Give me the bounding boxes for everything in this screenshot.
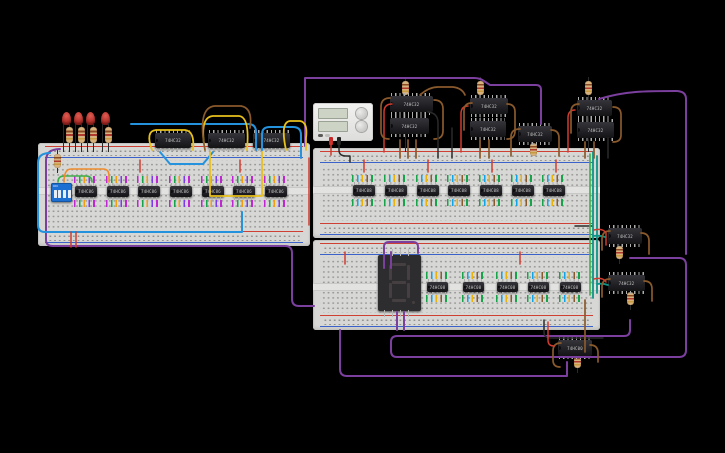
ic-label: 74HC86: [110, 189, 126, 194]
rail-red-line: [320, 151, 593, 152]
breadboard[interactable]: [313, 240, 600, 330]
jumper-wires-top: [232, 176, 256, 183]
rail-holes[interactable]: [322, 318, 591, 325]
ic-pins-top: [234, 183, 254, 186]
wire-red[interactable]: [568, 110, 575, 152]
jumper-wires-top: [542, 175, 566, 182]
ic-pins-top: [171, 183, 191, 186]
jumper-wires-top: [106, 176, 130, 183]
ic-label: 74HC00: [567, 346, 583, 351]
resistor-leg: [480, 77, 481, 81]
rail-blue-line: [320, 254, 593, 255]
jumper-wires-bottom: [527, 295, 550, 302]
segment: [389, 265, 392, 280]
resistor[interactable]: [54, 154, 61, 168]
resistor-leg: [108, 123, 109, 127]
ic-chip[interactable]: 74HC08: [560, 282, 581, 292]
ic-chip[interactable]: 74HC08: [528, 282, 549, 292]
ic-label: 74HC32: [264, 138, 280, 143]
circuit-canvas[interactable]: ON74HC3274HC3274HC3274HC8674HC8674HC8674…: [0, 0, 725, 453]
jumper-wires-top: [511, 175, 535, 182]
ic-label: 74HC86: [141, 189, 157, 194]
ic-pins-bottom: [254, 148, 289, 151]
rail-blue-line: [45, 242, 303, 243]
rail-blue-line: [320, 162, 593, 163]
rail-holes[interactable]: [322, 246, 591, 253]
jumper-wires-bottom: [106, 200, 130, 207]
ic-pins-bottom: [609, 244, 641, 247]
ic-chip[interactable]: 74HC32: [208, 133, 245, 148]
jumper-wires-bottom: [201, 200, 225, 207]
jumper-wires-top: [479, 175, 503, 182]
dip-switch-toggle[interactable]: [58, 190, 61, 198]
dip-switch[interactable]: ON: [51, 183, 72, 202]
psu-power-button[interactable]: [318, 134, 323, 137]
jumper-wires-bottom: [137, 200, 161, 207]
ic-chip[interactable]: 74HC32: [577, 122, 614, 138]
ic-pins-top: [391, 115, 428, 118]
rail-holes[interactable]: [322, 226, 591, 233]
resistor-leg: [69, 123, 70, 127]
segment: [407, 265, 410, 280]
ic-label: 74HC32: [480, 127, 496, 132]
ic-label: 74HC86: [268, 189, 284, 194]
ic-pins-top: [354, 182, 374, 185]
ic-chip[interactable]: 74HC86: [138, 186, 160, 197]
ic-chip[interactable]: 74HC86: [75, 186, 97, 197]
ic-label: 74HC08: [356, 188, 372, 193]
ic-label: 74HC32: [588, 128, 604, 133]
ic-pins-top: [544, 182, 564, 185]
ic-label: 74HC08: [546, 188, 562, 193]
jumper-wires-top: [201, 176, 225, 183]
rail-red-line: [45, 231, 303, 232]
psu-voltage-knob[interactable]: [356, 108, 367, 119]
ic-pins-top: [76, 183, 96, 186]
dip-switch-toggle[interactable]: [68, 190, 71, 198]
ic-chip[interactable]: 74HC86: [170, 186, 192, 197]
ic-label: 74HC08: [483, 188, 499, 193]
ic-chip[interactable]: 74HC08: [512, 185, 534, 196]
jumper-wires-top: [137, 176, 161, 183]
resistor-leg: [577, 368, 578, 373]
ic-chip[interactable]: 74HC32: [390, 96, 433, 112]
ic-pins-top: [254, 130, 289, 133]
dip-switch-toggle[interactable]: [63, 190, 66, 198]
ic-label: 74HC32: [219, 138, 235, 143]
jumper-wires-bottom: [559, 295, 582, 302]
ic-pins-bottom: [519, 142, 551, 145]
ic-label: 74HC32: [619, 281, 635, 286]
jumper-wires-top: [416, 175, 440, 182]
ic-chip[interactable]: 74HC32: [470, 98, 508, 114]
rail-red-line: [320, 243, 593, 244]
power-rail-bottom[interactable]: [45, 231, 303, 243]
ic-pins-top: [464, 279, 483, 282]
ic-label: 74HC86: [236, 189, 252, 194]
ic-pins-top: [391, 93, 432, 96]
ic-pins-bottom: [209, 148, 244, 151]
ic-label: 74HC08: [451, 188, 467, 193]
ic-chip[interactable]: 74HC08: [427, 282, 448, 292]
jumper-wires-bottom: [232, 200, 256, 207]
jumper-wires-top: [559, 272, 582, 279]
led-cathode-leg: [75, 124, 76, 152]
display-pin: [392, 249, 393, 256]
ic-chip[interactable]: 74HC32: [155, 133, 191, 148]
ic-pins-top: [471, 118, 505, 121]
display-pin: [408, 310, 409, 317]
dip-switch-toggle[interactable]: [54, 190, 57, 198]
ic-chip[interactable]: 74HC08: [480, 185, 502, 196]
wire-purple[interactable]: [340, 330, 567, 376]
display-pin: [392, 310, 393, 317]
ic-pins-bottom: [609, 291, 644, 294]
ic-pins-top: [139, 183, 159, 186]
display-pin: [400, 249, 401, 256]
ic-pins-bottom: [471, 137, 505, 140]
seven-segment-display[interactable]: [378, 255, 421, 311]
segment: [389, 283, 392, 298]
center-channel: [313, 284, 600, 290]
ic-label: 74HC32: [617, 234, 633, 239]
resistor[interactable]: [616, 246, 623, 259]
ic-chip[interactable]: 74HC86: [107, 186, 129, 197]
ic-pins-top: [471, 95, 507, 98]
resistor-leg: [81, 143, 82, 152]
ic-chip[interactable]: 74HC32: [470, 121, 506, 137]
psu-voltage-display: [318, 108, 348, 119]
led-cathode-leg: [87, 124, 88, 152]
ic-label: 74HC08: [515, 188, 531, 193]
jumper-wires-top: [447, 175, 471, 182]
ic-pins-top: [203, 183, 223, 186]
jumper-wires-bottom: [511, 199, 535, 206]
display-pin: [384, 249, 385, 256]
rail-blue-line: [320, 234, 593, 235]
ic-chip[interactable]: 74HC32: [608, 275, 645, 291]
resistor[interactable]: [477, 81, 484, 95]
ic-chip[interactable]: 74HC08: [463, 282, 484, 292]
ic-chip[interactable]: 74HC86: [265, 186, 287, 197]
ic-pins-bottom: [471, 114, 507, 117]
led-cathode-leg: [63, 124, 64, 152]
display-pin: [408, 249, 409, 256]
ic-label: 74HC32: [481, 104, 497, 109]
resistor-leg: [57, 168, 58, 173]
ic-pins-top: [386, 182, 406, 185]
rail-blue-line: [320, 326, 593, 327]
ic-pins-top: [449, 182, 469, 185]
power-rail-bottom[interactable]: [320, 223, 593, 235]
jumper-wires-top: [426, 272, 449, 279]
resistor[interactable]: [90, 127, 97, 143]
resistor[interactable]: [585, 81, 592, 95]
ic-pins-top: [561, 279, 580, 282]
resistor[interactable]: [78, 127, 85, 143]
ic-pins-bottom: [391, 134, 428, 137]
ic-label: 74HC08: [388, 188, 404, 193]
display-pin: [400, 310, 401, 317]
ic-pins-top: [609, 225, 641, 228]
wire-red[interactable]: [461, 106, 468, 152]
decimal-point: [412, 301, 415, 304]
ic-pins-top: [266, 183, 286, 186]
resistor-leg: [619, 259, 620, 264]
resistor-leg: [93, 143, 94, 152]
segment: [392, 299, 406, 302]
ic-chip[interactable]: 74HC08: [497, 282, 518, 292]
resistor-leg: [69, 143, 70, 152]
jumper-wires-bottom: [426, 295, 449, 302]
jumper-wires-top: [352, 175, 376, 182]
jumper-wires-top: [462, 272, 485, 279]
ic-chip[interactable]: 74HC32: [577, 100, 612, 116]
display-pin: [384, 310, 385, 317]
ic-chip[interactable]: 74HC00: [558, 340, 592, 356]
resistor[interactable]: [66, 127, 73, 143]
ic-pins-bottom: [156, 148, 190, 151]
ic-pins-top: [428, 279, 447, 282]
power-rail-top[interactable]: [320, 243, 593, 255]
jumper-wires-top: [169, 176, 193, 183]
ic-label: 74HC08: [531, 285, 547, 290]
ic-pins-top: [609, 272, 644, 275]
jumper-wires-top: [384, 175, 408, 182]
ic-chip[interactable]: 74HC86: [233, 186, 255, 197]
jumper-wires-bottom: [447, 199, 471, 206]
rail-holes[interactable]: [322, 154, 591, 161]
ic-label: 74HC32: [165, 138, 181, 143]
ic-label: 74HC08: [430, 285, 446, 290]
jumper-wires-bottom: [74, 200, 98, 207]
rail-red-line: [320, 223, 593, 224]
power-supply[interactable]: [313, 103, 373, 141]
segment: [407, 283, 410, 298]
ic-label: 74HC32: [587, 106, 603, 111]
ic-pins-top: [559, 337, 591, 340]
wire-brown[interactable]: [613, 107, 621, 142]
ic-label: 74HC32: [527, 132, 543, 137]
ic-chip[interactable]: 74HC08: [543, 185, 565, 196]
ic-pins-bottom: [578, 138, 613, 141]
jumper-wires-top: [74, 176, 98, 183]
jumper-wires-bottom: [352, 199, 376, 206]
resistor-leg: [588, 77, 589, 81]
ic-chip[interactable]: 74HC32: [608, 228, 642, 244]
resistor-leg: [93, 123, 94, 127]
resistor-leg: [81, 123, 82, 127]
ic-chip[interactable]: 74HC32: [253, 133, 290, 148]
ic-pins-top: [156, 130, 190, 133]
wire-brown[interactable]: [381, 98, 390, 139]
ic-pins-top: [578, 119, 613, 122]
rail-blue-line: [45, 157, 303, 158]
ic-pins-top: [498, 279, 517, 282]
ic-pins-top: [513, 182, 533, 185]
jumper-wires-bottom: [479, 199, 503, 206]
jumper-wires-bottom: [462, 295, 485, 302]
wire-brown[interactable]: [641, 233, 649, 254]
jumper-wires-bottom: [496, 295, 519, 302]
ic-pins-top: [108, 183, 128, 186]
ic-pins-top: [578, 97, 611, 100]
psu-current-knob[interactable]: [356, 121, 367, 132]
jumper-wires-bottom: [169, 200, 193, 207]
resistor[interactable]: [105, 127, 112, 143]
ic-pins-top: [519, 123, 551, 126]
ic-chip[interactable]: 74HC08: [385, 185, 407, 196]
psu-positive-terminal[interactable]: [329, 137, 333, 145]
jumper-wires-bottom: [542, 199, 566, 206]
dip-switch-label: ON: [53, 184, 58, 188]
jumper-wires-bottom: [384, 199, 408, 206]
ic-label: 74HC08: [466, 285, 482, 290]
wire-brown[interactable]: [434, 100, 443, 139]
ic-chip[interactable]: 74HC08: [353, 185, 375, 196]
led-cathode-leg: [102, 124, 103, 152]
ic-chip[interactable]: 74HC08: [448, 185, 470, 196]
resistor-leg: [108, 143, 109, 152]
resistor-leg: [405, 77, 406, 81]
wire-brown[interactable]: [507, 104, 515, 139]
power-rail-bottom[interactable]: [320, 315, 593, 327]
rail-holes[interactable]: [47, 234, 301, 241]
ic-pins-top: [529, 279, 548, 282]
ic-label: 74HC32: [404, 102, 420, 107]
ic-pins-top: [481, 182, 501, 185]
jumper-wires-bottom: [416, 199, 440, 206]
segment: [392, 281, 406, 284]
ic-label: 74HC08: [500, 285, 516, 290]
ic-label: 74HC86: [173, 189, 189, 194]
ic-chip[interactable]: 74HC32: [518, 126, 552, 142]
ic-label: 74HC08: [420, 188, 436, 193]
psu-current-display: [318, 121, 348, 132]
ic-pins-bottom: [559, 356, 591, 359]
ic-label: 74HC08: [563, 285, 579, 290]
ic-label: 74HC86: [78, 189, 94, 194]
ic-label: 74HC32: [402, 124, 418, 129]
jumper-wires-top: [527, 272, 550, 279]
jumper-wires-top: [496, 272, 519, 279]
segment: [392, 263, 406, 266]
ic-chip[interactable]: 74HC86: [202, 186, 224, 197]
ic-label: 74HC86: [205, 189, 221, 194]
resistor-leg: [630, 305, 631, 310]
rail-red-line: [320, 315, 593, 316]
jumper-wires-top: [264, 176, 288, 183]
resistor-leg: [57, 150, 58, 154]
wire-brown[interactable]: [644, 281, 652, 301]
ic-chip[interactable]: 74HC08: [417, 185, 439, 196]
ic-chip[interactable]: 74HC32: [390, 118, 429, 134]
ic-pins-top: [418, 182, 438, 185]
jumper-wires-bottom: [264, 200, 288, 207]
power-rail-top[interactable]: [320, 151, 593, 163]
psu-negative-terminal[interactable]: [337, 137, 341, 145]
ic-pins-top: [209, 130, 244, 133]
